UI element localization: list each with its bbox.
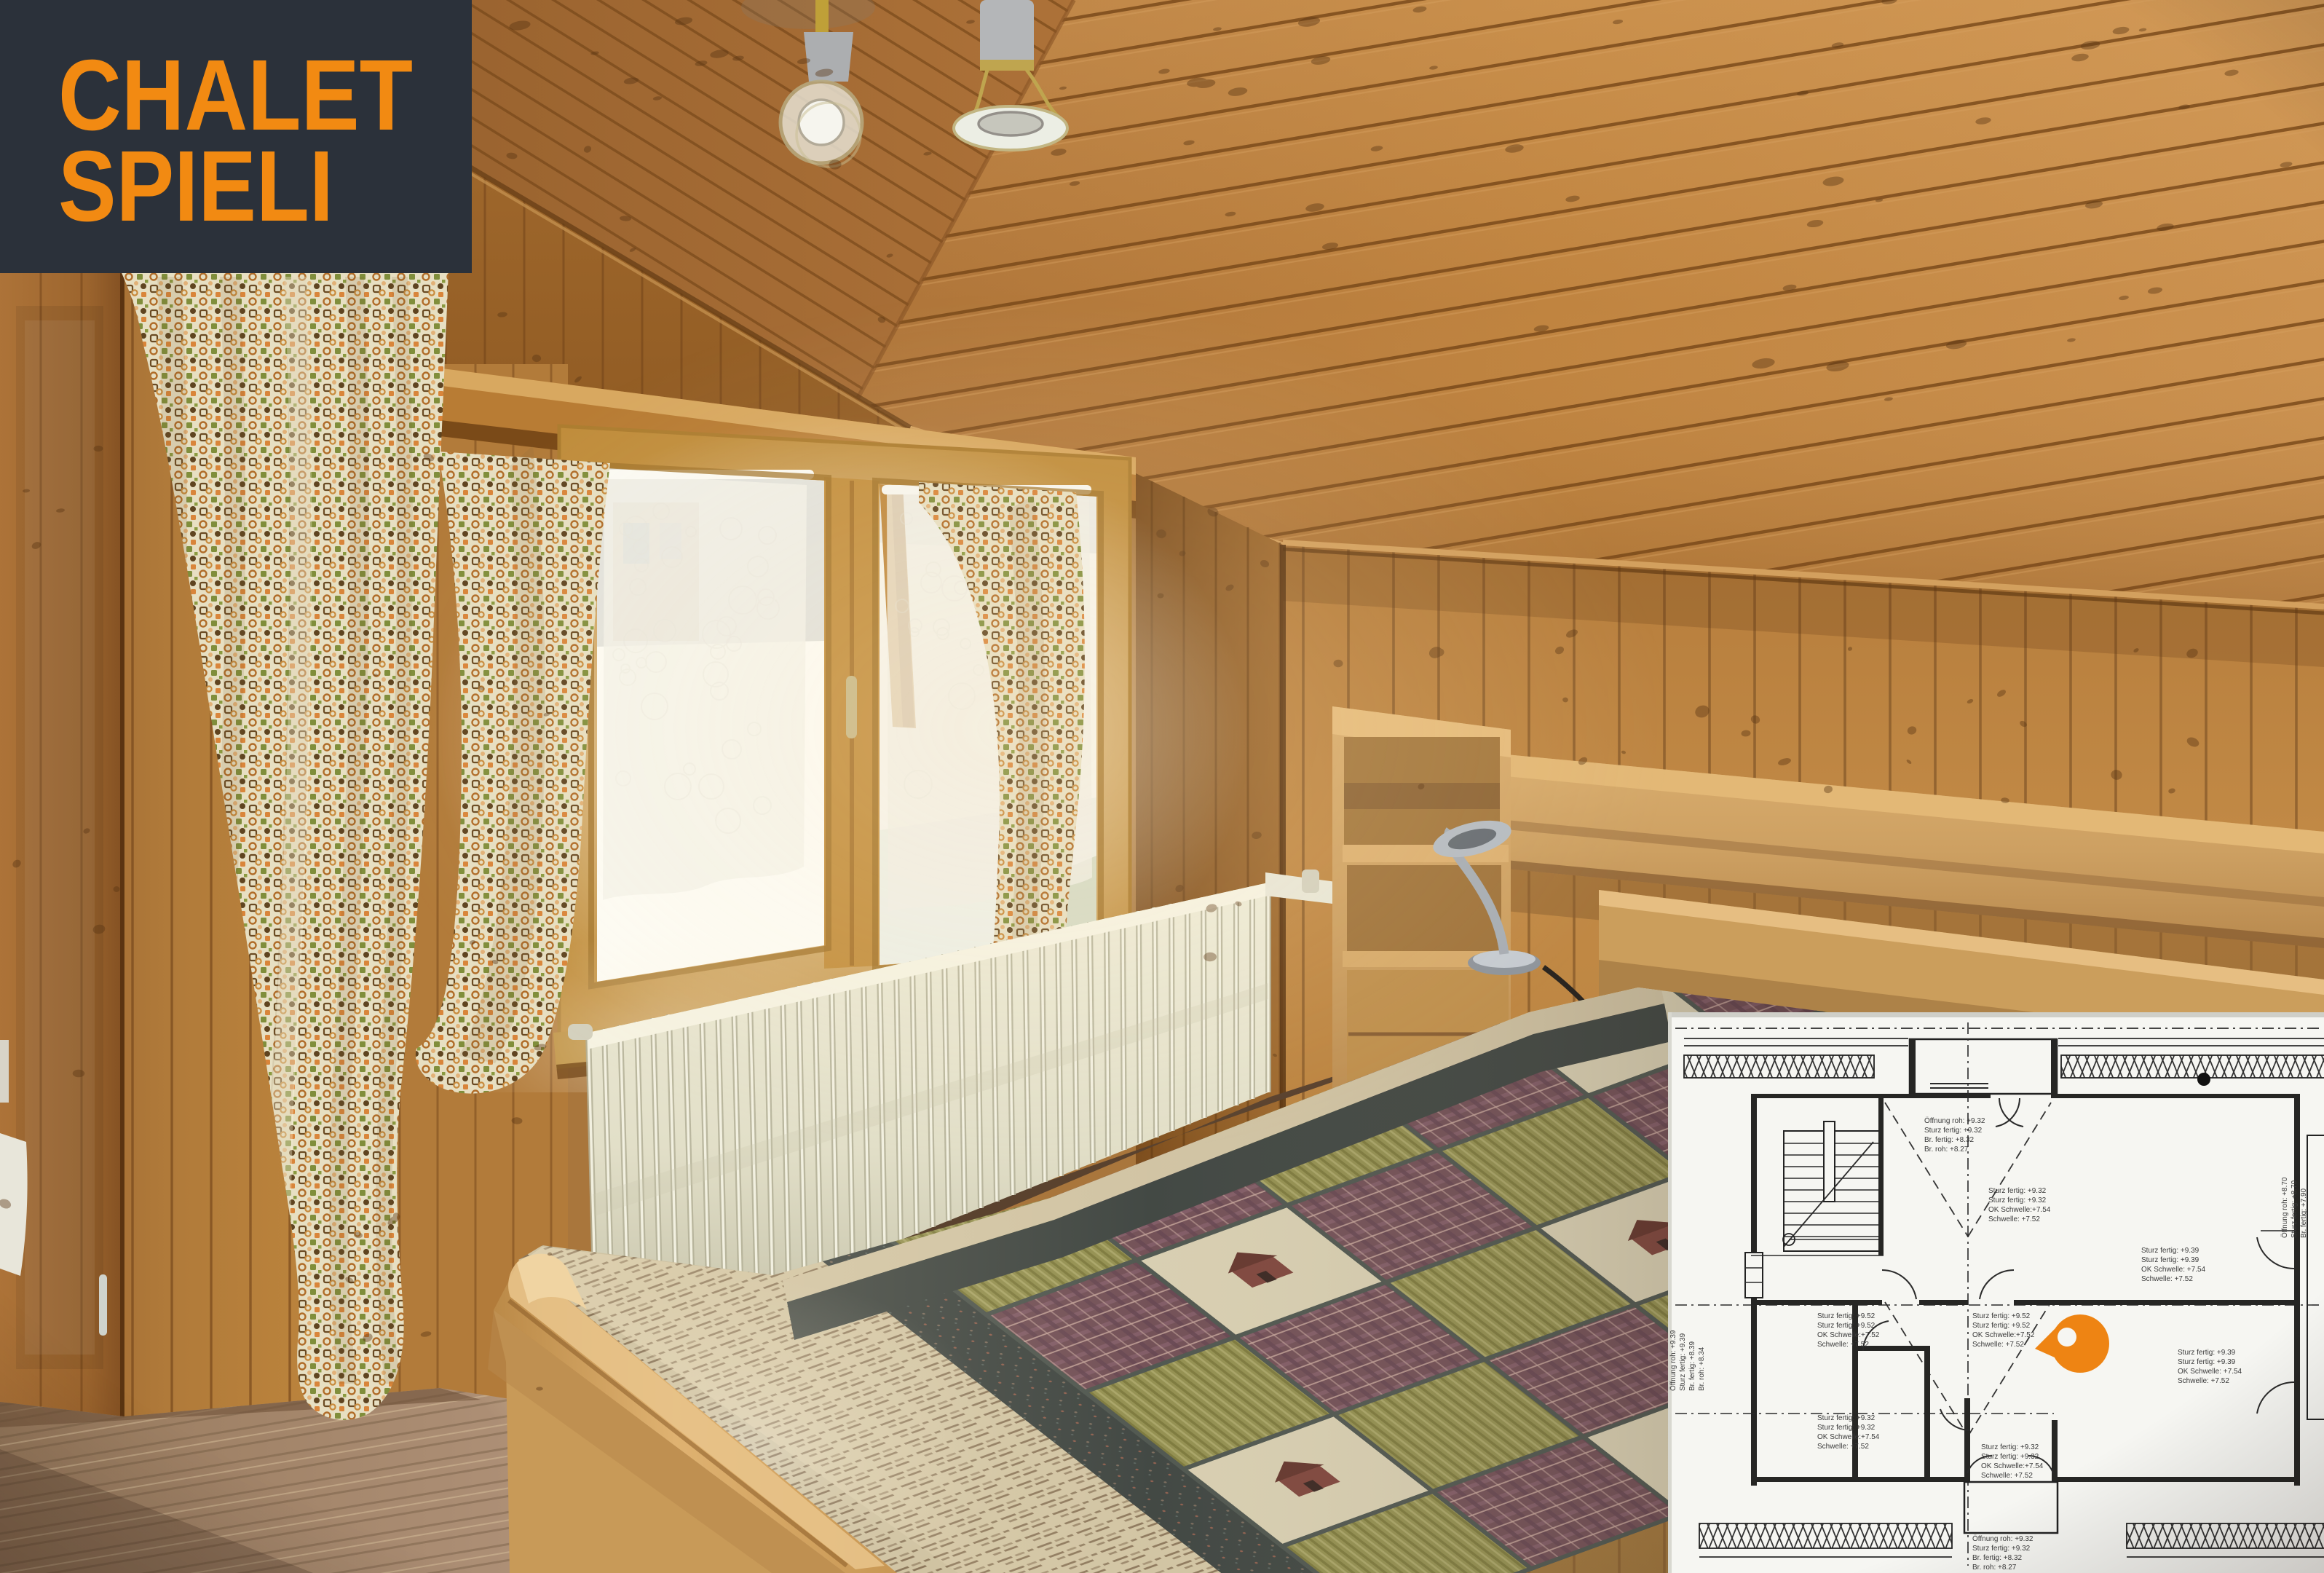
svg-text:SPIELI: SPIELI bbox=[58, 130, 333, 243]
